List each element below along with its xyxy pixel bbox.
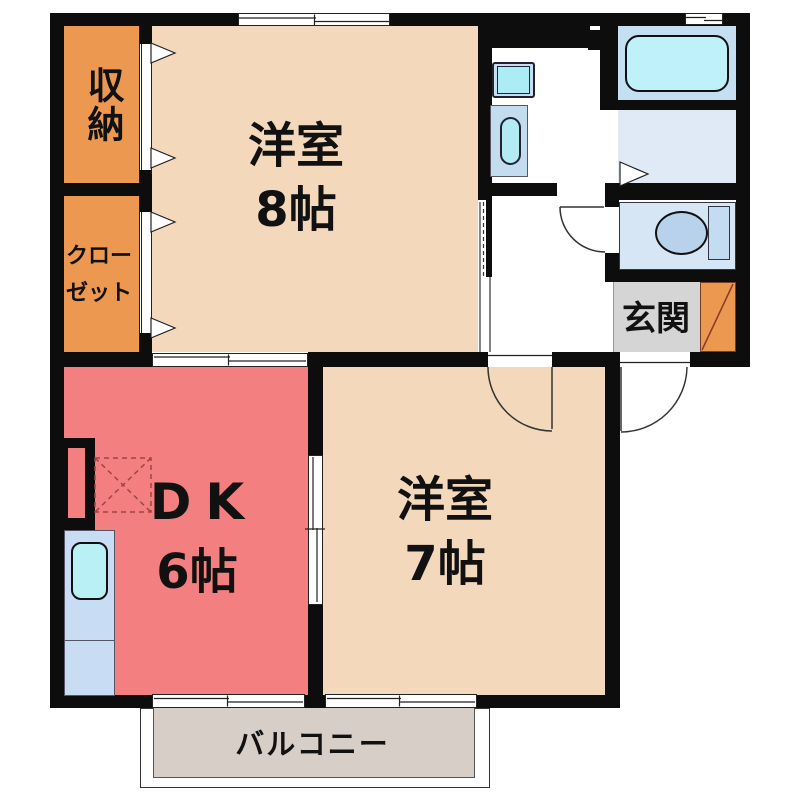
western7-label: 洋室 7帖 [325, 468, 565, 596]
balcony-label: バルコニー [150, 727, 475, 761]
opening-dressing-door [602, 110, 618, 183]
genkan-label: 玄関 [611, 300, 701, 338]
toilet-tank [708, 206, 730, 260]
wall-wash-bath [600, 13, 618, 110]
wall-western7-east [605, 352, 620, 708]
dk-label: DK 6帖 [85, 467, 309, 607]
wall-genkan-south [690, 352, 750, 367]
closet-label: クロー ゼット [54, 238, 144, 312]
western7-name: 洋室 [325, 468, 565, 532]
window-western7-balcony [325, 694, 477, 708]
opening-toilet-door [605, 207, 619, 253]
vanity-sink [500, 117, 521, 165]
western8-label: 洋室 8帖 [176, 114, 416, 242]
wall-washroom-south [478, 183, 557, 196]
toilet-bowl [655, 211, 708, 255]
door-arc-toilet [560, 207, 605, 252]
washing-machine [497, 66, 530, 94]
western8-name: 洋室 [176, 114, 416, 178]
wall-mid-row-a [50, 352, 152, 367]
wall-storage-divider [50, 183, 140, 196]
window-dk-balcony [152, 694, 305, 708]
wall-dressing-south [605, 183, 750, 200]
slide-door-dk-western8 [152, 353, 308, 367]
wall-washroom-north [478, 26, 590, 48]
opening-entrance-door [620, 353, 690, 367]
wall-mid-row-b [308, 352, 488, 367]
wall-slide-bar [486, 200, 492, 277]
window-western8-top [238, 13, 390, 26]
wall-jamb-top [140, 24, 152, 44]
kitchen-stub-inner [68, 448, 85, 518]
opening-western7-door [488, 353, 552, 366]
western7-size: 7帖 [325, 532, 565, 596]
wall-top [50, 13, 750, 26]
wall-bath-south [605, 100, 736, 110]
closet-line1: クロー [54, 238, 144, 275]
kitchen-counter-divider [64, 640, 115, 641]
floor-plan: 洋室 8帖 洋室 7帖 DK 6帖 収納 クロー ゼット 玄関 バルコニー [0, 0, 800, 800]
storage-label: 収納 [82, 66, 122, 144]
genkan-slope [700, 282, 736, 352]
wall-toilet-south [605, 270, 750, 282]
window-bathroom-top [685, 13, 723, 25]
dk-name: DK [85, 467, 309, 537]
bathtub [625, 35, 729, 92]
closet-line2: ゼット [54, 275, 144, 312]
wall-stub [588, 30, 604, 50]
dressing-room-floor [617, 110, 736, 183]
wall-jamb-mid [140, 170, 152, 212]
door-arc-entrance [621, 367, 687, 432]
dk-size: 6帖 [85, 537, 309, 607]
window-dk-western7 [308, 455, 323, 605]
western8-size: 8帖 [176, 178, 416, 242]
